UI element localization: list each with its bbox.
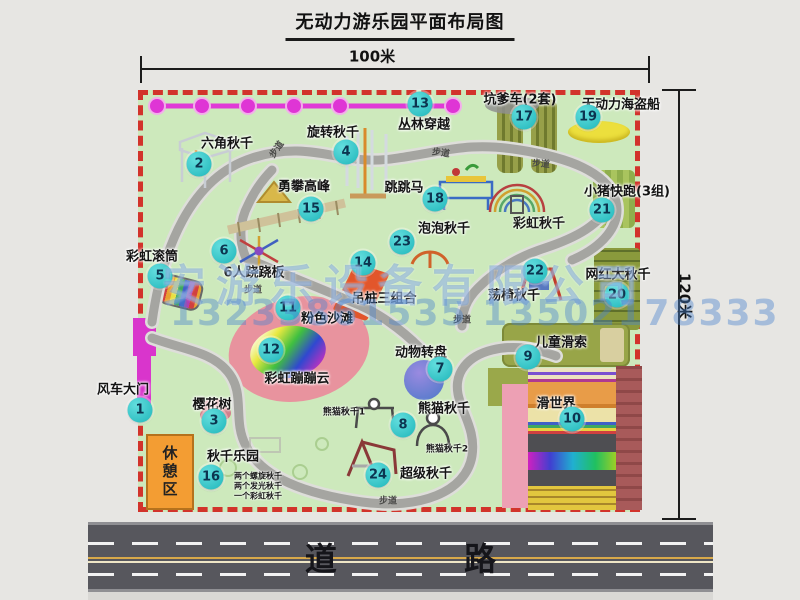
road-band: 道 路 (88, 522, 713, 592)
extra-label-2: 熊猫秋千2 (426, 442, 468, 455)
windmill-gate-top (133, 318, 156, 356)
attraction-badge-11[interactable]: 11 (276, 296, 301, 321)
kids-zipline-deck (600, 328, 624, 362)
page-title: 无动力游乐园平面布局图 (286, 8, 515, 41)
attraction-badge-20[interactable]: 20 (605, 283, 630, 308)
attraction-label-13: 丛林穿越 (398, 114, 450, 133)
attraction-badge-17[interactable]: 17 (512, 105, 537, 130)
attraction-label-5: 彩虹滚筒 (126, 246, 178, 265)
footpath-label-1: 步道 (431, 144, 451, 159)
attraction-label-15: 勇攀高峰 (278, 176, 330, 195)
attraction-label-11: 粉色沙滩 (301, 308, 353, 327)
attraction-label-23: 泡泡秋千 (418, 218, 470, 237)
attraction-label-22: 荡椅秋千 (488, 285, 540, 304)
attraction-badge-23[interactable]: 23 (390, 230, 415, 255)
attraction-badge-3[interactable]: 3 (202, 409, 227, 434)
rest-area-label: 休憩区 (160, 445, 181, 499)
attraction-label-2: 六角秋千 (201, 133, 253, 152)
slide-world-red-strip (616, 366, 642, 510)
attraction-badge-22[interactable]: 22 (523, 259, 548, 284)
attraction-label-1: 风车大门 (97, 379, 149, 398)
attraction-badge-16[interactable]: 16 (199, 465, 224, 490)
attraction-badge-4[interactable]: 4 (334, 140, 359, 165)
attraction-badge-10[interactable]: 10 (560, 407, 585, 432)
attraction-badge-13[interactable]: 13 (408, 92, 433, 117)
attraction-badge-8[interactable]: 8 (391, 413, 416, 438)
rest-area-box: 休憩区 (146, 434, 194, 510)
attraction-label-20: 网红大秋千 (585, 264, 650, 283)
footpath-label-3: 步道 (244, 283, 262, 296)
slide-world-dark-block-1 (528, 434, 618, 452)
dimension-right-label: 120米 (675, 273, 696, 319)
attraction-badge-12[interactable]: 12 (259, 338, 284, 363)
road-shoulder (88, 592, 713, 600)
attraction-badge-21[interactable]: 21 (590, 198, 615, 223)
slide-world-lane-top (528, 368, 618, 382)
playground-plan-screenshot: 无动力游乐园平面布局图 100米 120米 (0, 0, 800, 600)
extra-label-5: 一个彩虹秋千 (234, 491, 282, 502)
attraction-badge-2[interactable]: 2 (187, 152, 212, 177)
footpath-label-4: 步道 (453, 313, 471, 326)
attraction-label-14: 吊桩三组合 (351, 288, 416, 307)
attraction-label-12: 彩虹蹦蹦云 (264, 368, 329, 387)
attraction-label-4: 旋转秋千 (307, 122, 359, 141)
attraction-label-24: 超级秋千 (400, 463, 452, 482)
attraction-badge-9[interactable]: 9 (516, 345, 541, 370)
attraction-badge-14[interactable]: 14 (351, 251, 376, 276)
attraction-badge-19[interactable]: 19 (576, 105, 601, 130)
slide-world-yellow-waves (528, 486, 618, 510)
footpath-label-2: 步道 (531, 156, 550, 171)
slide-world-rainbow-gradient (528, 452, 618, 470)
slide-world-dark-block-2 (528, 470, 618, 486)
footpath-label-5: 步道 (379, 494, 397, 507)
attraction-badge-5[interactable]: 5 (148, 264, 173, 289)
extra-label-0: 彩虹秋千 (513, 213, 565, 232)
attraction-label-18: 跳跳马 (384, 177, 423, 196)
attraction-label-8: 熊猫秋千 (418, 398, 470, 417)
attraction-label-21: 小猪快跑(3组) (584, 181, 670, 200)
attraction-label-9: 儿童滑索 (535, 332, 587, 351)
attraction-label-16: 秋千乐园 (207, 446, 259, 465)
attraction-label-6: 6人跷跷板 (223, 262, 284, 281)
attraction-badge-15[interactable]: 15 (299, 197, 324, 222)
attraction-badge-1[interactable]: 1 (128, 398, 153, 423)
extra-label-1: 熊猫秋千1 (323, 405, 365, 418)
dimension-top-label: 100米 (349, 46, 395, 67)
attraction-badge-18[interactable]: 18 (423, 187, 448, 212)
attraction-badge-6[interactable]: 6 (212, 239, 237, 264)
slide-world-pink-strip (502, 384, 528, 508)
attraction-badge-24[interactable]: 24 (366, 463, 391, 488)
road-label: 道 路 (247, 534, 554, 580)
attraction-badge-7[interactable]: 7 (428, 357, 453, 382)
